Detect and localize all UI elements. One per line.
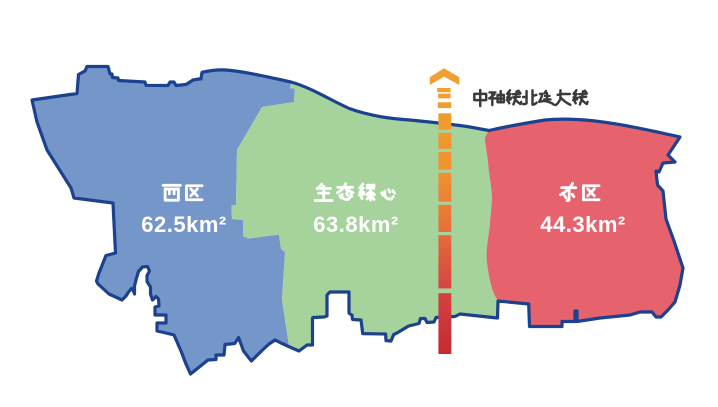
svg-text:44.3km²: 44.3km² (540, 212, 625, 237)
svg-text:63.8km²: 63.8km² (313, 212, 398, 237)
svg-text:62.5km²: 62.5km² (141, 212, 226, 237)
